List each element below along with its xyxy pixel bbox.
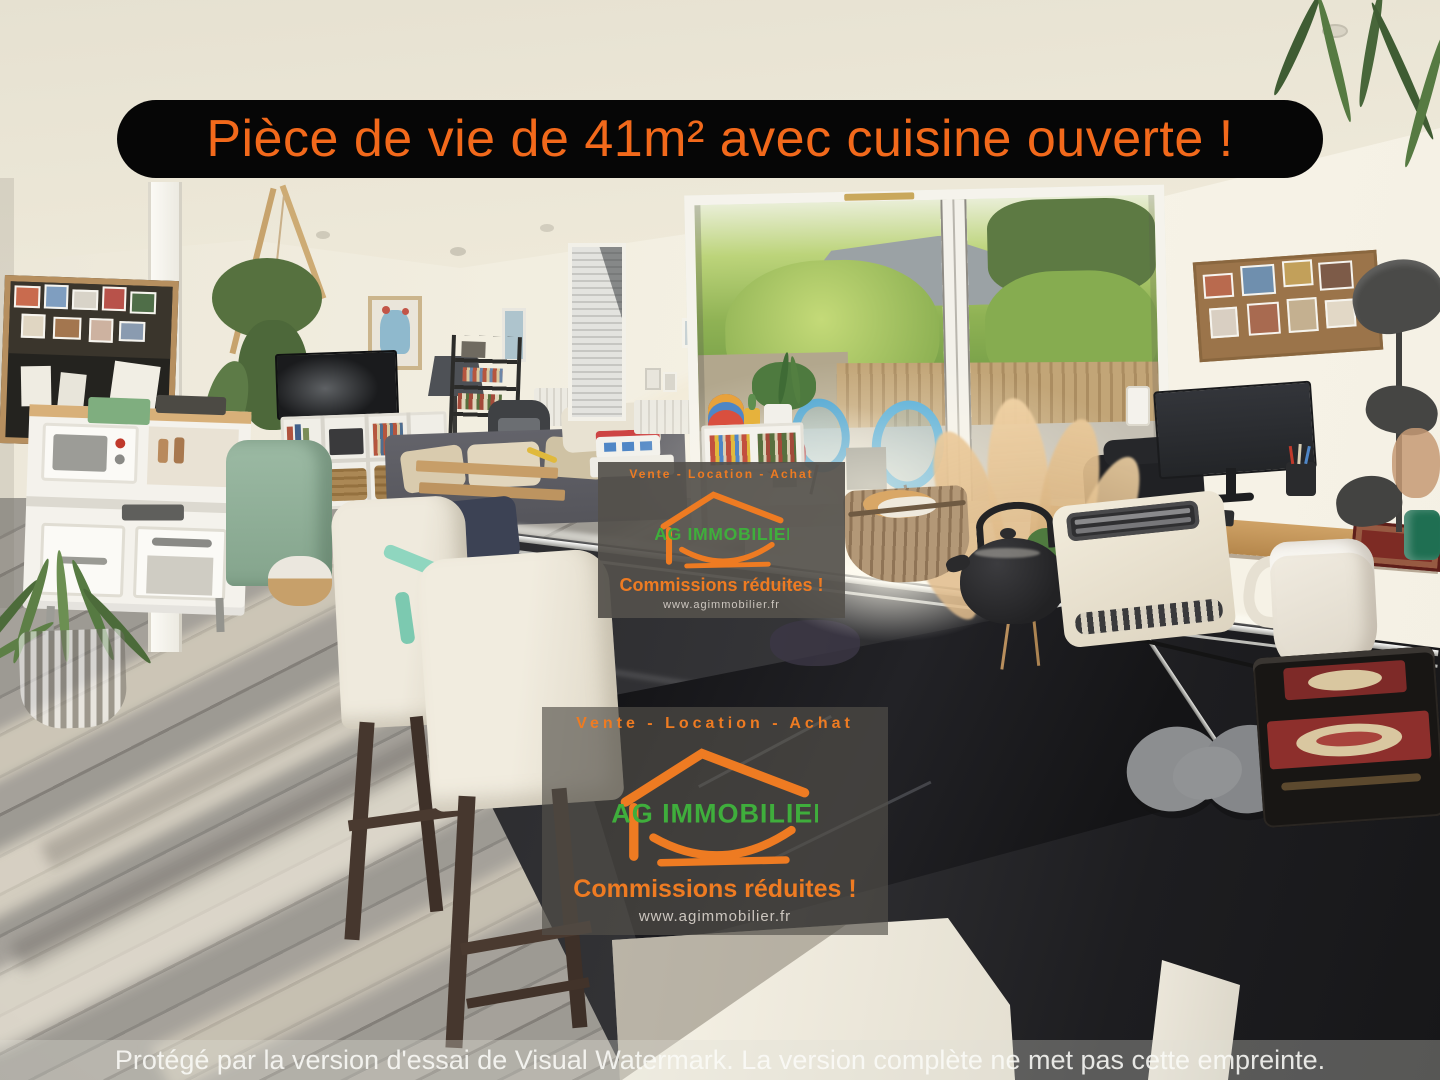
toy-sink (122, 505, 184, 521)
watermark-tagline: Vente - Location - Achat (598, 467, 845, 481)
pinned-note (57, 372, 86, 409)
toy-books (710, 434, 751, 465)
pinned-photo (53, 317, 82, 340)
toy-jars (174, 437, 185, 463)
caption-banner: Pièce de vie de 41m² avec cuisine ouvert… (117, 100, 1323, 178)
ceiling-spotlight (540, 224, 554, 232)
teapot-glint (974, 548, 1040, 558)
shelf-clutter (156, 395, 227, 415)
agency-logo: AG IMMOBILIER (612, 733, 818, 873)
toy-rainbow (708, 394, 744, 426)
media-box (329, 428, 364, 455)
brand-name: AG IMMOBILIER (612, 799, 818, 829)
watermark-website: www.agimmobilier.fr (542, 908, 888, 925)
trial-watermark-text: Protégé par la version d'essai de Visual… (115, 1045, 1325, 1076)
pinned-photo (1203, 273, 1235, 299)
wicker-basket (328, 468, 367, 501)
toy-books (758, 433, 797, 464)
pinned-photo (1240, 264, 1276, 296)
books (462, 367, 502, 382)
ceiling-spotlight (316, 231, 330, 239)
tv-screen (275, 350, 399, 420)
toy-oven-door (133, 526, 227, 601)
green-vase (1404, 510, 1440, 560)
pinned-photo (21, 314, 46, 339)
toy-jars (158, 439, 169, 463)
pinned-photo (102, 286, 127, 311)
tea-tin (1252, 646, 1440, 828)
pinned-photo (44, 284, 69, 309)
toaster (1051, 489, 1237, 648)
agency-watermark-large: Vente - Location - Achat AG IMMOBILIER C… (542, 707, 888, 935)
watermark-slogan: Commissions réduites ! (542, 875, 888, 904)
agency-logo: AG IMMOBILIER (655, 481, 789, 573)
teapot-lid (1000, 528, 1016, 539)
trial-watermark-bar: Protégé par la version d'essai de Visual… (0, 1040, 1440, 1080)
toy-microwave (41, 423, 139, 484)
watermark-website: www.agimmobilier.fr (598, 599, 845, 611)
cactus (748, 394, 756, 410)
brand-name: AG IMMOBILIER (655, 524, 789, 544)
dried-flowers (1392, 428, 1440, 498)
watermark-tagline: Vente - Location - Achat (542, 715, 888, 733)
caption-text: Pièce de vie de 41m² avec cuisine ouvert… (206, 109, 1233, 169)
recipe-box (88, 397, 151, 425)
listing-photo: Pièce de vie de 41m² avec cuisine ouvert… (0, 0, 1440, 1080)
watermark-slogan: Commissions réduites ! (598, 575, 845, 596)
pinned-photo (1247, 302, 1281, 336)
pinned-photo (89, 318, 114, 343)
monitor-stand (1226, 468, 1236, 496)
agency-watermark-small: Vente - Location - Achat AG IMMOBILIER C… (598, 462, 845, 618)
books (461, 341, 486, 358)
pinned-photo (119, 321, 146, 342)
blinds-window (568, 243, 626, 421)
pinned-photo (1209, 307, 1239, 339)
pouf (268, 556, 332, 606)
pinned-photo (1318, 260, 1354, 290)
pinned-photo (130, 291, 157, 314)
toy-kitchen-leg (215, 598, 224, 632)
ceiling-spotlight (450, 247, 466, 256)
pinned-photo (14, 285, 41, 308)
pinned-photo (72, 289, 99, 310)
wall-outlet (1126, 386, 1150, 426)
pen-cup (1286, 462, 1316, 496)
pinned-note (21, 366, 52, 407)
plant-pot-silver (18, 628, 127, 730)
pinned-photo (1287, 297, 1319, 333)
pinned-photo (1282, 259, 1314, 287)
